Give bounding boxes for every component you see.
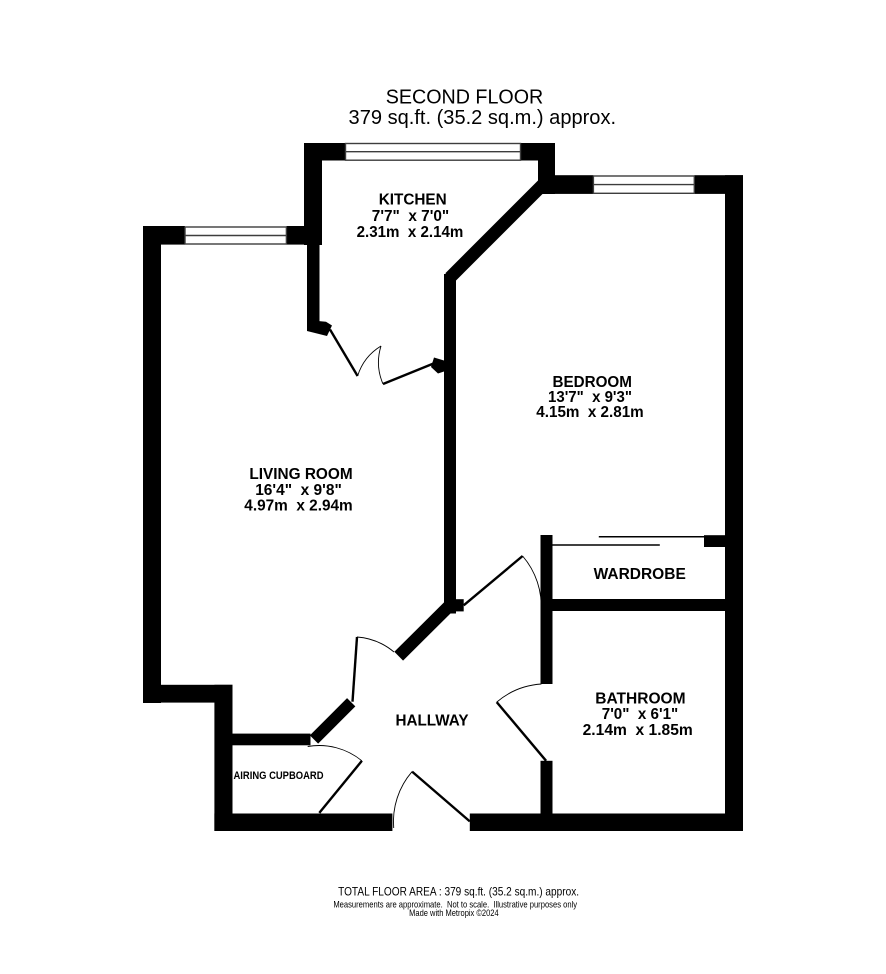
svg-text:379 sq.ft. (35.2 sq.m.) approx: 379 sq.ft. (35.2 sq.m.) approx. [349,107,617,129]
svg-text:4.97m x 2.94m: 4.97m x 2.94m [244,498,352,515]
svg-text:4.15m x 2.81m: 4.15m x 2.81m [536,404,643,421]
svg-text:TOTAL FLOOR AREA : 379 sq.ft.: TOTAL FLOOR AREA : 379 sq.ft. (35.2 sq.m… [338,884,579,898]
svg-text:16'4" x 9'8": 16'4" x 9'8" [255,482,342,499]
svg-text:2.14m x 1.85m: 2.14m x 1.85m [583,722,693,739]
svg-text:WARDROBE: WARDROBE [594,566,686,583]
svg-text:HALLWAY: HALLWAY [395,712,469,729]
svg-text:BATHROOM: BATHROOM [595,690,685,707]
svg-text:7'7" x 7'0": 7'7" x 7'0" [372,208,449,225]
svg-text:KITCHEN: KITCHEN [379,192,447,209]
svg-text:7'0" x 6'1": 7'0" x 6'1" [602,706,679,723]
svg-text:Made with Metropix ©2024: Made with Metropix ©2024 [409,908,499,918]
svg-text:LIVING ROOM: LIVING ROOM [249,466,352,483]
svg-text:AIRING CUPBOARD: AIRING CUPBOARD [234,770,324,782]
svg-text:SECOND FLOOR: SECOND FLOOR [386,87,544,109]
svg-text:2.31m x 2.14m: 2.31m x 2.14m [357,224,464,241]
